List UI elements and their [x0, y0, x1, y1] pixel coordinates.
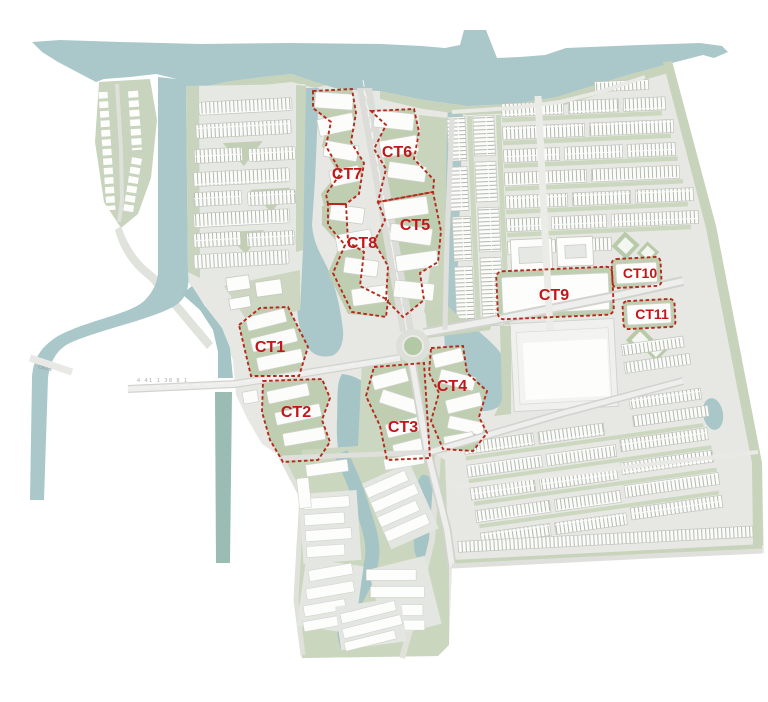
svg-text:CT1: CT1: [255, 339, 285, 356]
svg-text:CT7: CT7: [332, 166, 362, 183]
svg-text:CT3: CT3: [388, 419, 418, 436]
svg-text:CT4: CT4: [437, 378, 467, 395]
svg-text:CT5: CT5: [400, 217, 430, 234]
svg-text:CT8: CT8: [347, 235, 377, 252]
svg-text:CT6: CT6: [382, 144, 412, 161]
svg-text:CT2: CT2: [281, 404, 311, 421]
svg-text:4 41 1 38 8 1: 4 41 1 38 8 1: [137, 378, 189, 384]
svg-text:CT10: CT10: [623, 265, 657, 281]
svg-text:CT11: CT11: [635, 306, 669, 322]
svg-text:CT9: CT9: [539, 287, 569, 304]
